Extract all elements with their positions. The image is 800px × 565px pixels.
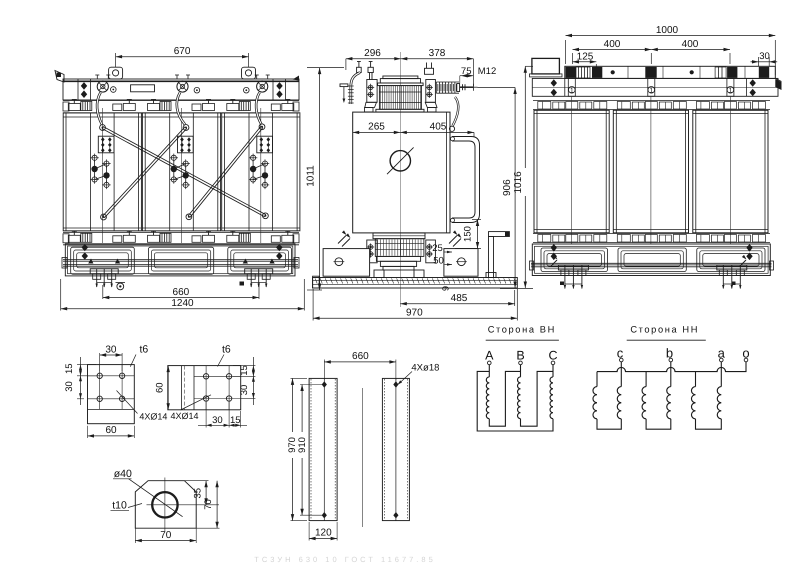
svg-text:970: 970 [287,437,298,453]
svg-text:Сторона НН: Сторона НН [630,325,699,335]
svg-text:660: 660 [352,351,369,362]
svg-text:15: 15 [64,363,75,374]
svg-text:4Xø18: 4Xø18 [411,363,439,374]
svg-text:70: 70 [160,530,172,541]
svg-text:Сторона ВН: Сторона ВН [488,325,556,335]
svg-text:670: 670 [174,46,191,57]
svg-text:t10: t10 [112,500,127,512]
svg-text:30: 30 [105,344,117,355]
svg-text:60: 60 [154,382,165,393]
svg-text:906: 906 [502,179,513,196]
svg-text:485: 485 [451,293,468,304]
svg-text:1: 1 [729,87,733,94]
svg-text:9: 9 [441,286,451,291]
svg-text:296: 296 [364,48,381,59]
svg-text:M12: M12 [478,66,496,77]
svg-text:4XØ14: 4XØ14 [139,411,167,421]
svg-text:125: 125 [577,51,594,62]
svg-text:265: 265 [368,122,385,133]
svg-text:400: 400 [604,39,621,50]
svg-text:15: 15 [239,365,250,376]
svg-text:30: 30 [239,385,250,396]
svg-text:970: 970 [406,308,423,319]
svg-text:1016: 1016 [513,171,524,194]
svg-text:ø40: ø40 [114,468,132,480]
svg-text:30: 30 [759,51,770,62]
svg-text:25: 25 [432,243,443,254]
svg-text:150: 150 [463,226,474,242]
svg-text:15: 15 [230,415,241,426]
svg-text:405: 405 [430,122,447,133]
svg-text:C: C [548,348,557,362]
svg-text:30: 30 [64,381,75,392]
svg-text:ТС3УН 630 10 ГОСТ 11677.85: ТС3УН 630 10 ГОСТ 11677.85 [254,555,436,564]
svg-text:1: 1 [649,87,653,94]
svg-text:t6: t6 [140,344,149,356]
svg-text:70: 70 [203,499,214,510]
svg-text:1011: 1011 [306,165,317,187]
svg-text:30: 30 [212,415,223,426]
svg-text:50: 50 [433,256,444,267]
svg-text:1: 1 [570,87,574,94]
svg-text:B: B [516,348,524,362]
svg-text:A: A [485,348,494,362]
svg-text:t6: t6 [222,344,231,356]
svg-text:120: 120 [315,528,332,539]
svg-text:35: 35 [192,488,203,499]
svg-text:60: 60 [105,425,117,436]
svg-text:660: 660 [173,287,190,298]
svg-text:400: 400 [682,39,699,50]
svg-text:4XØ14: 4XØ14 [171,411,199,421]
svg-text:1000: 1000 [656,25,679,36]
svg-text:910: 910 [297,437,308,453]
svg-text:378: 378 [429,48,446,59]
svg-text:1240: 1240 [171,298,194,309]
